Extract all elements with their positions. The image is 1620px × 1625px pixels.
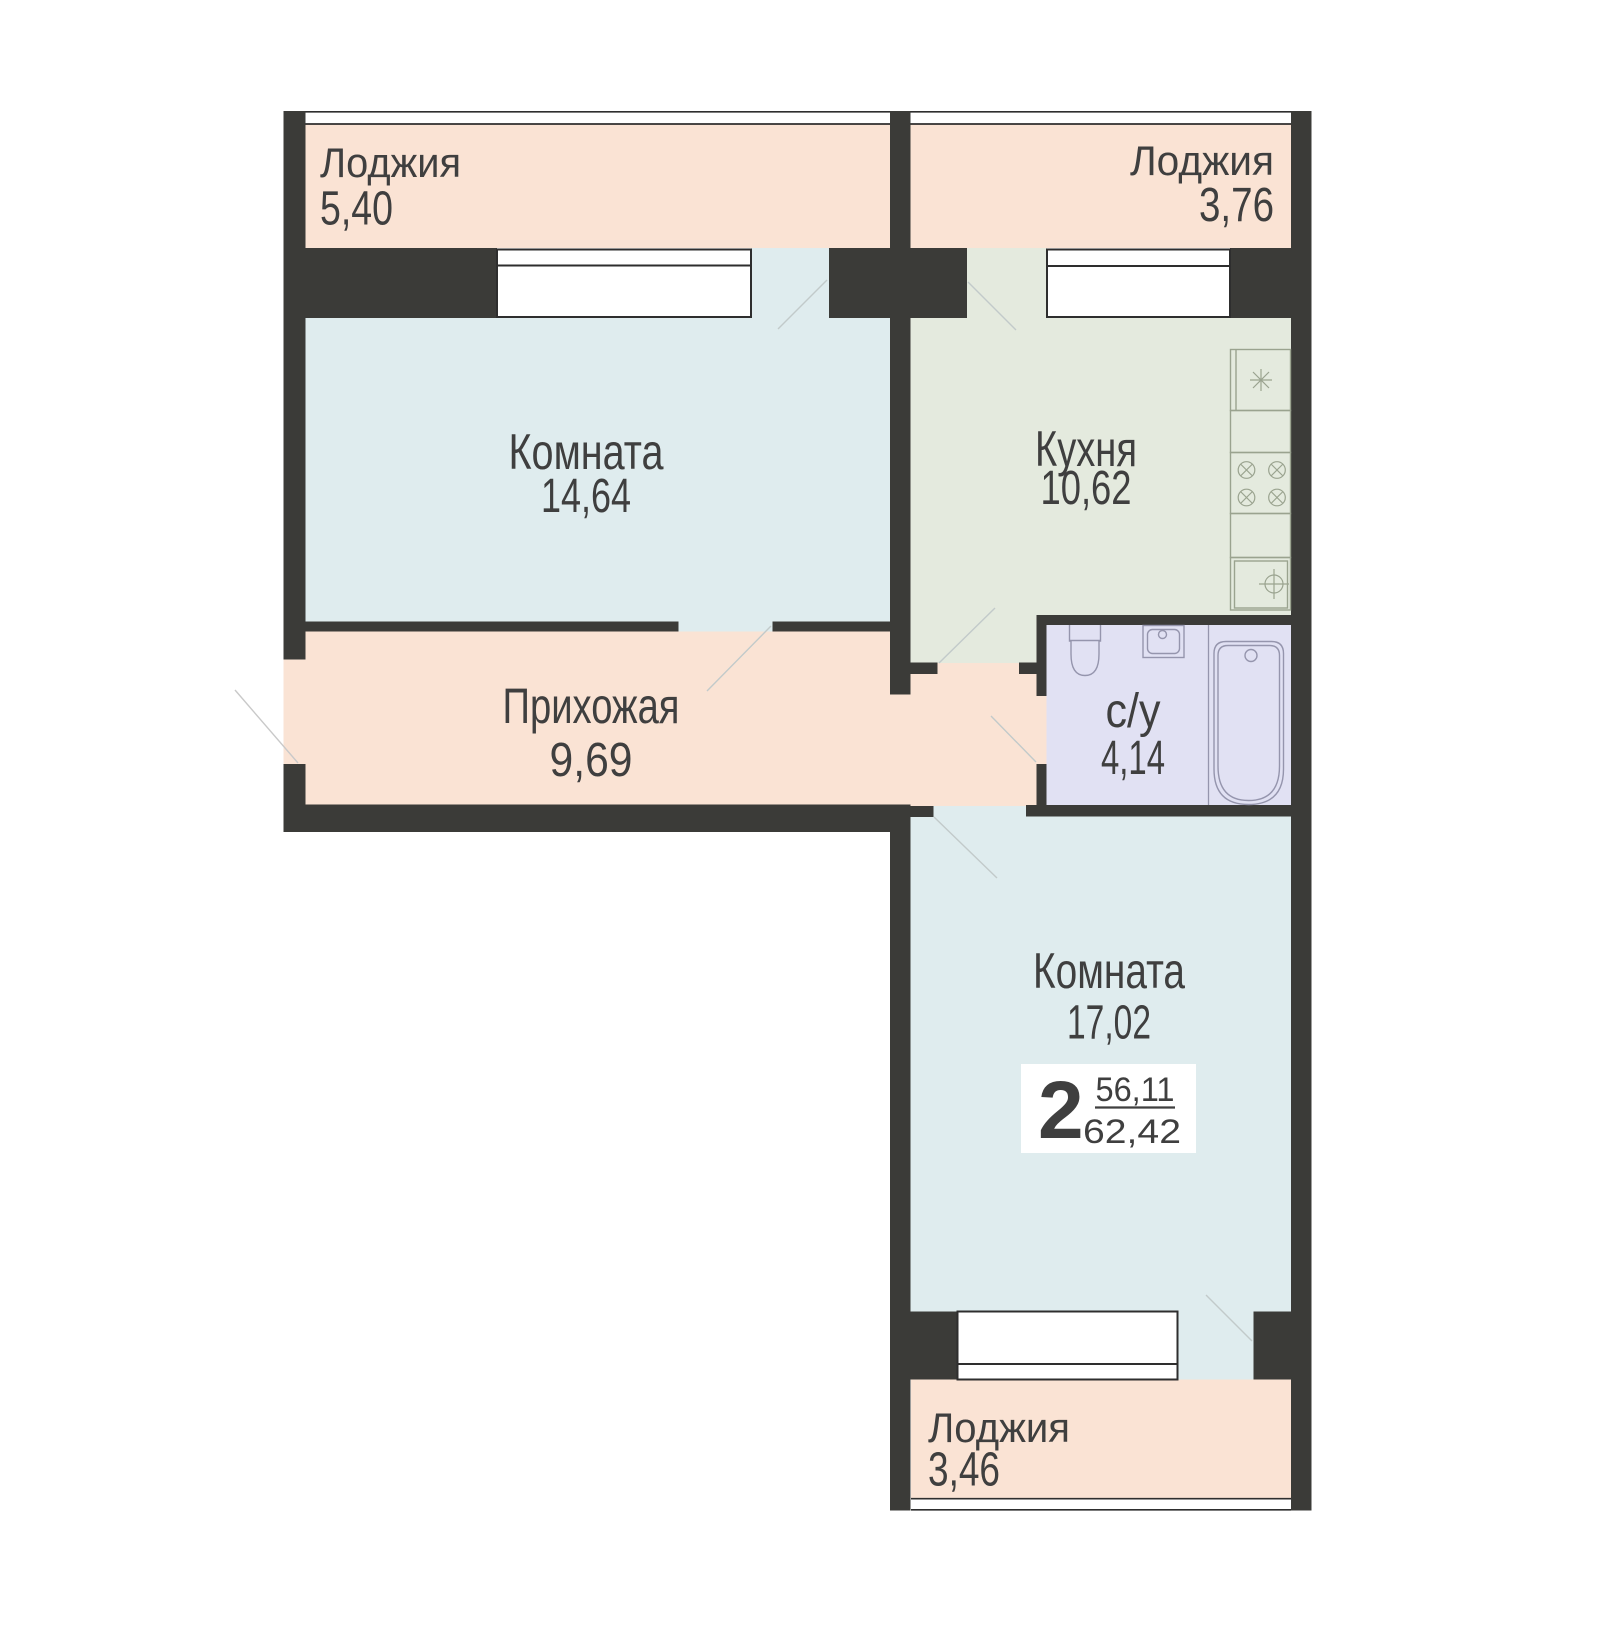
- svg-text:Комната: Комната: [1033, 943, 1185, 999]
- svg-text:3,46: 3,46: [928, 1444, 1000, 1497]
- svg-text:4,14: 4,14: [1101, 732, 1165, 785]
- svg-text:9,69: 9,69: [550, 734, 633, 787]
- svg-text:Лоджия: Лоджия: [1130, 137, 1274, 184]
- svg-text:Прихожая: Прихожая: [503, 678, 680, 734]
- svg-text:с/у: с/у: [1106, 685, 1161, 738]
- svg-text:Лоджия: Лоджия: [320, 139, 461, 186]
- svg-text:62,42: 62,42: [1083, 1113, 1181, 1151]
- svg-text:5,40: 5,40: [320, 183, 393, 236]
- svg-text:56,11: 56,11: [1096, 1071, 1175, 1109]
- svg-text:3,76: 3,76: [1199, 179, 1274, 232]
- svg-text:17,02: 17,02: [1067, 997, 1151, 1050]
- svg-text:14,64: 14,64: [541, 470, 631, 523]
- svg-text:2: 2: [1038, 1065, 1084, 1156]
- svg-text:10,62: 10,62: [1041, 462, 1132, 515]
